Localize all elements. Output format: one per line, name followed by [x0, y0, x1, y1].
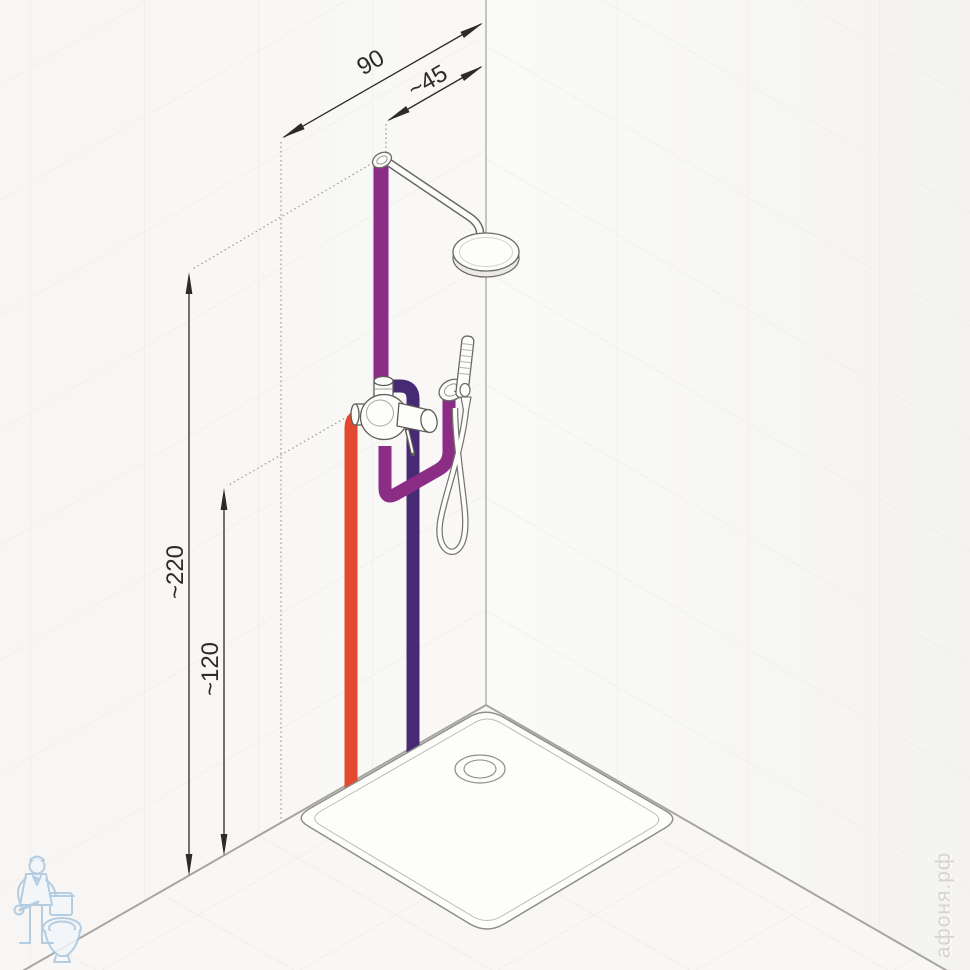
dimension-120-label: ~120 [197, 642, 224, 696]
bow-tie [35, 877, 39, 881]
rain-shower-head [453, 233, 519, 271]
holder-clamp [460, 384, 470, 397]
site-watermark-text: афоня.рф [932, 852, 955, 958]
dimension-220-label: ~220 [162, 545, 189, 599]
isometric-scene: 90 ~45 ~220 ~120 [0, 0, 970, 970]
drain-outer [455, 755, 505, 783]
plumber-head [30, 859, 45, 874]
site-watermark: афоня.рф афоня.рф [932, 852, 957, 958]
shower-installation-diagram: 90 ~45 ~220 ~120 [0, 0, 970, 970]
plumber-hair [30, 857, 44, 861]
mixer-top-fitting-cap [374, 377, 393, 386]
mixer-left-fitting-cap [351, 404, 359, 425]
